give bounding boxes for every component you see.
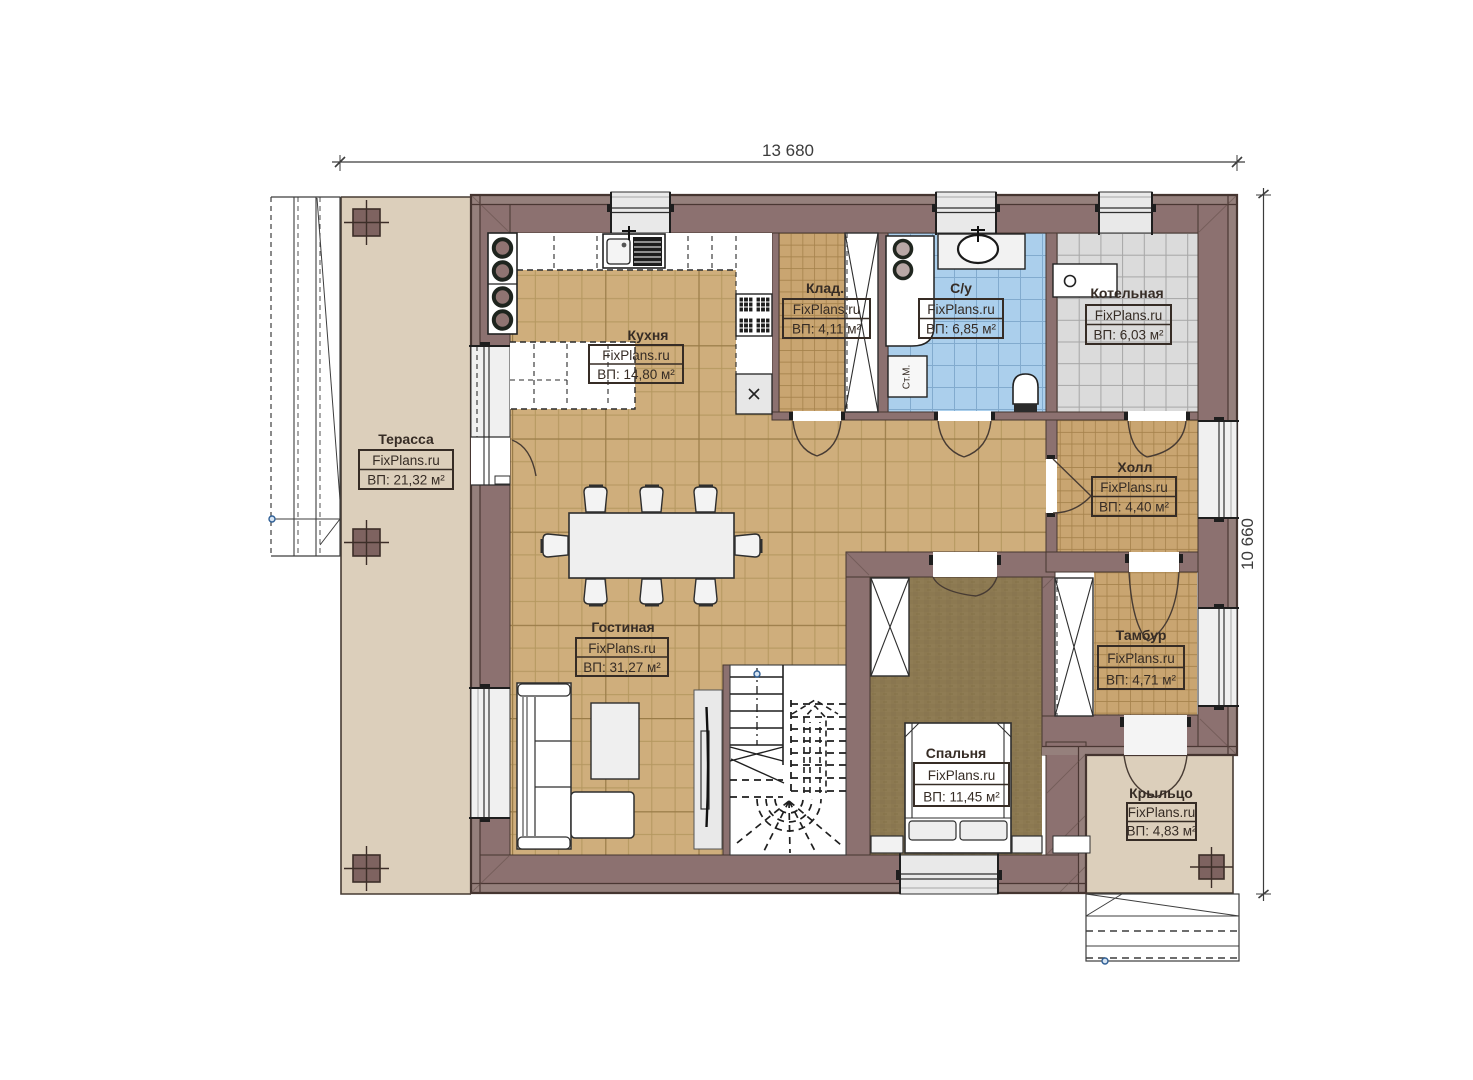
svg-text:ВП: 21,32 м²: ВП: 21,32 м²	[367, 473, 445, 488]
svg-text:FixPlans.ru: FixPlans.ru	[588, 641, 656, 656]
svg-text:FixPlans.ru: FixPlans.ru	[602, 348, 670, 363]
svg-text:С/у: С/у	[950, 280, 972, 296]
svg-text:FixPlans.ru: FixPlans.ru	[927, 302, 995, 317]
svg-text:FixPlans.ru: FixPlans.ru	[1095, 308, 1163, 323]
svg-text:ВП: 4,11 м²: ВП: 4,11 м²	[792, 322, 862, 337]
svg-text:FixPlans.ru: FixPlans.ru	[793, 302, 861, 317]
svg-text:FixPlans.ru: FixPlans.ru	[1128, 805, 1196, 820]
svg-text:FixPlans.ru: FixPlans.ru	[928, 768, 996, 783]
svg-text:ВП: 11,45 м²: ВП: 11,45 м²	[923, 790, 1000, 805]
svg-text:ВП: 4,40 м²: ВП: 4,40 м²	[1099, 500, 1170, 515]
svg-text:ВП: 6,03 м²: ВП: 6,03 м²	[1093, 328, 1164, 343]
svg-text:Крыльцо: Крыльцо	[1129, 785, 1193, 801]
svg-text:ВП: 31,27 м²: ВП: 31,27 м²	[583, 660, 661, 675]
svg-text:FixPlans.ru: FixPlans.ru	[1100, 480, 1168, 495]
svg-text:ВП: 4,83 м²: ВП: 4,83 м²	[1126, 824, 1197, 839]
svg-text:ВП: 14,80 м²: ВП: 14,80 м²	[597, 367, 675, 382]
svg-text:Гостиная: Гостиная	[591, 619, 654, 635]
svg-text:Кухня: Кухня	[628, 327, 669, 343]
svg-text:ВП: 4,71 м²: ВП: 4,71 м²	[1106, 673, 1177, 688]
svg-text:Холл: Холл	[1117, 459, 1152, 475]
svg-text:10 660: 10 660	[1238, 518, 1257, 570]
svg-text:ВП: 6,85 м²: ВП: 6,85 м²	[926, 322, 997, 337]
svg-text:FixPlans.ru: FixPlans.ru	[372, 453, 440, 468]
svg-text:FixPlans.ru: FixPlans.ru	[1107, 651, 1175, 666]
svg-text:Спальня: Спальня	[926, 745, 986, 761]
svg-text:Клад.: Клад.	[806, 280, 844, 296]
svg-text:Терасса: Терасса	[378, 431, 434, 447]
svg-text:Ст.М.: Ст.М.	[902, 365, 913, 390]
svg-text:Тамбур: Тамбур	[1116, 627, 1167, 643]
svg-text:Котельная: Котельная	[1090, 285, 1163, 301]
svg-text:13 680: 13 680	[762, 141, 814, 160]
